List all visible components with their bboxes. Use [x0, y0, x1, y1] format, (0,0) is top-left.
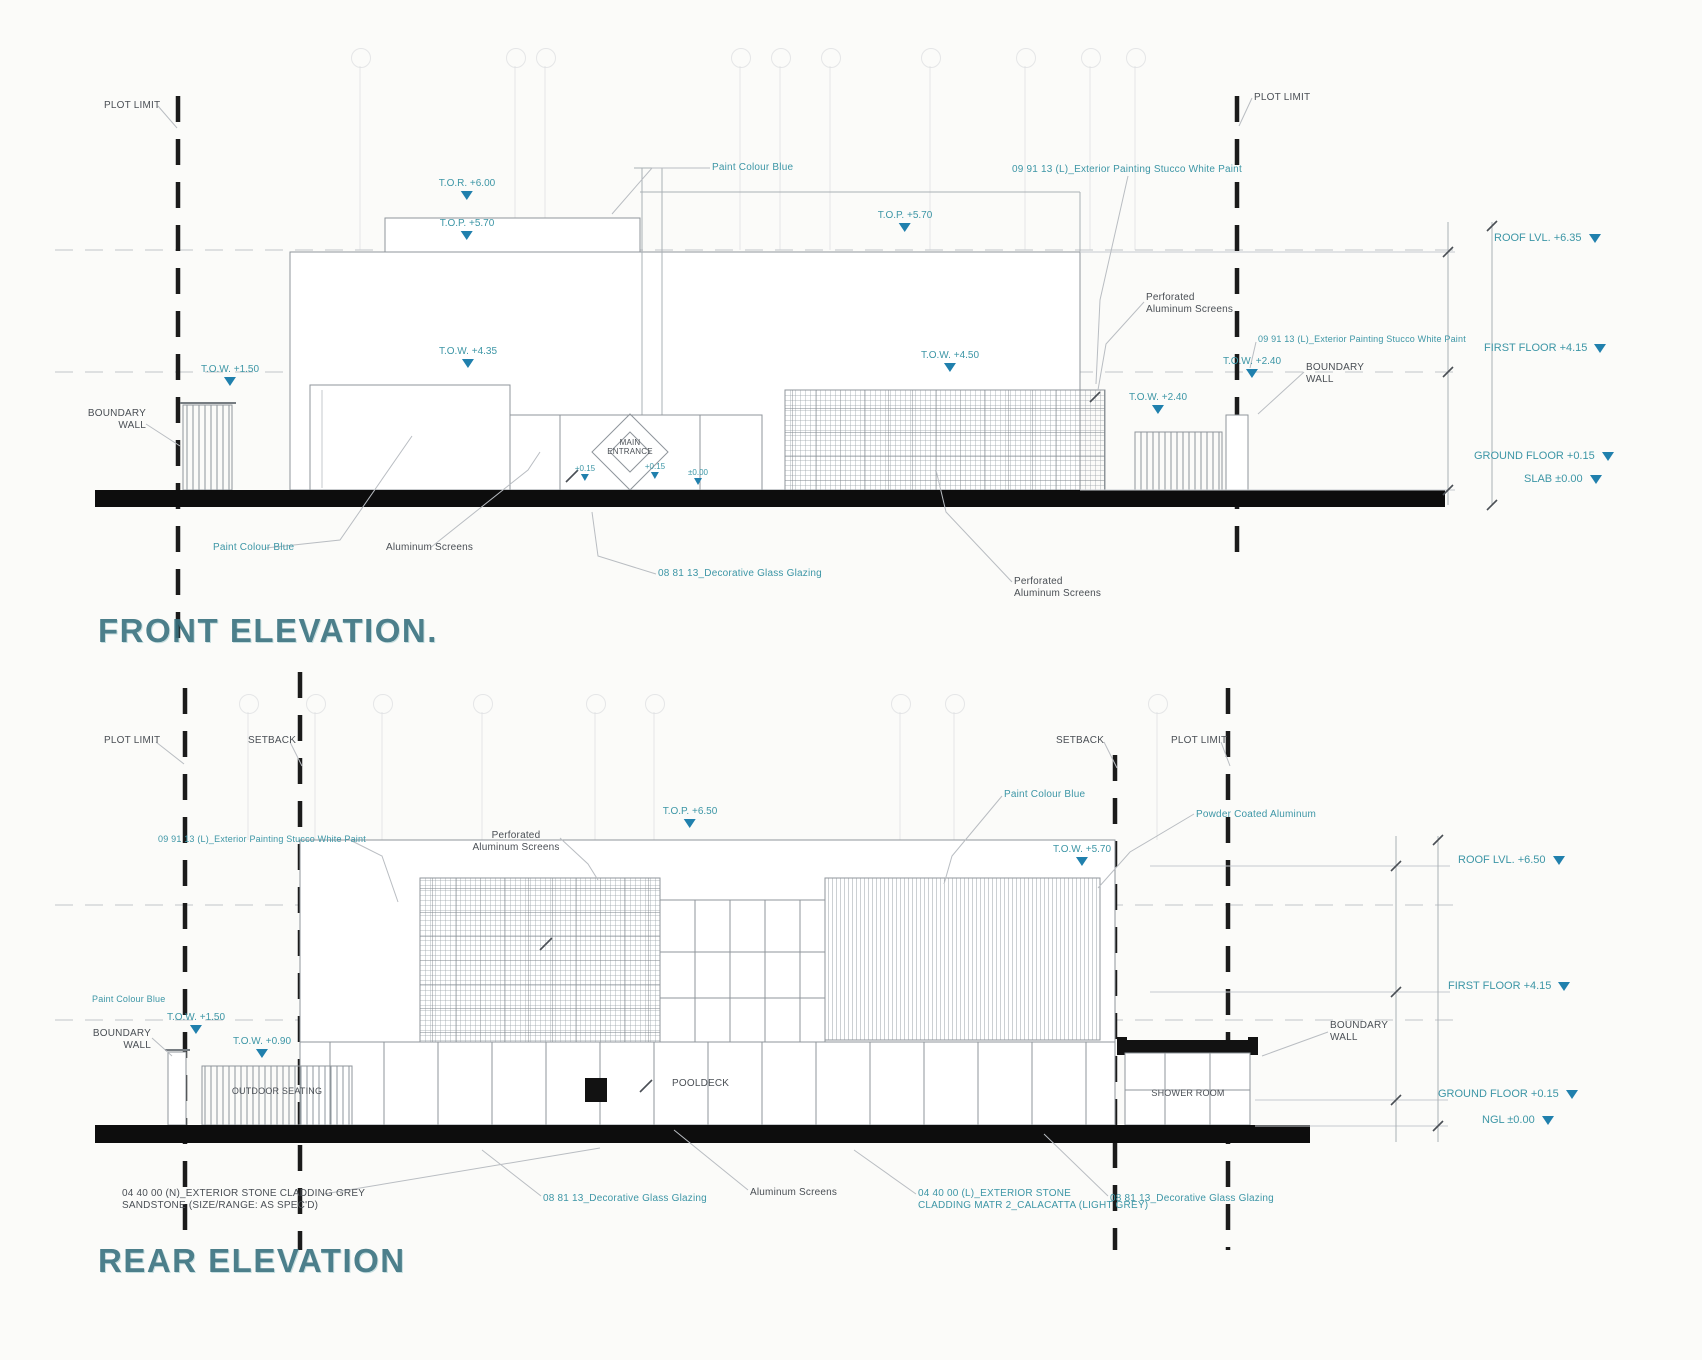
level-marker-tow-wall: T.O.W. +1.50: [201, 364, 259, 386]
boundary-wall-label-rear-left: BOUNDARY WALL: [75, 1028, 151, 1052]
grid-bubble: [771, 48, 791, 68]
grid-bubble: [921, 48, 941, 68]
grid-bubble: [1081, 48, 1101, 68]
grid-bubble: [586, 694, 606, 714]
level-triangle-icon: [462, 359, 474, 368]
boundary-wall-label-front-right: BOUNDARY WALL: [1306, 362, 1364, 386]
level-triangle-icon: [1076, 857, 1088, 866]
level-marker-base-c: ±0.00: [688, 468, 708, 485]
margin-level-first-front: FIRST FLOOR +4.15: [1484, 342, 1606, 355]
level-triangle-icon: [651, 472, 659, 479]
grid-bubble: [731, 48, 751, 68]
margin-level-ngl-rear: NGL ±0.00: [1482, 1114, 1554, 1127]
level-triangle-icon: [461, 231, 473, 240]
grid-bubble: [536, 48, 556, 68]
margin-level-slab-front: SLAB ±0.00: [1524, 473, 1602, 486]
grid-bubble: [239, 694, 259, 714]
boundary-wall-label-front-left: BOUNDARY WALL: [70, 408, 146, 432]
note-perforated-screens-front-bottom: Perforated Aluminum Screens: [1014, 576, 1101, 600]
level-triangle-icon: [1602, 452, 1614, 461]
shower-room-label: SHOWER ROOM: [1151, 1088, 1224, 1099]
setback-label-rear-right: SETBACK: [1056, 735, 1104, 747]
grid-bubble: [821, 48, 841, 68]
margin-level-roof-rear: ROOF LVL. +6.50: [1458, 854, 1565, 867]
level-marker-tow-fence: T.O.W. +2.40: [1129, 392, 1187, 414]
level-triangle-icon: [190, 1025, 202, 1034]
note-stucco-white-top: 09 91 13 (L)_Exterior Painting Stucco Wh…: [1012, 164, 1242, 176]
outdoor-seating-label: OUTDOOR SEATING: [232, 1086, 322, 1097]
level-triangle-icon: [1558, 982, 1570, 991]
level-triangle-icon: [684, 819, 696, 828]
note-paint-blue-top: Paint Colour Blue: [712, 162, 793, 174]
plot-limit-label-rear-left: PLOT LIMIT: [104, 735, 160, 747]
setback-label-rear-left: SETBACK: [248, 735, 296, 747]
note-paint-blue-rear-top: Paint Colour Blue: [1004, 789, 1085, 801]
level-triangle-icon: [1566, 1090, 1578, 1099]
note-stucco-white-right: 09 91 13 (L)_Exterior Painting Stucco Wh…: [1258, 334, 1466, 345]
level-triangle-icon: [461, 191, 473, 200]
front-elevation-title: FRONT ELEVATION.: [98, 612, 438, 650]
margin-level-roof-front: ROOF LVL. +6.35: [1494, 232, 1601, 245]
grid-bubble: [1126, 48, 1146, 68]
grid-bubble: [473, 694, 493, 714]
plot-limit-label-front-left: PLOT LIMIT: [104, 100, 160, 112]
note-aluminum-screens-rear: Aluminum Screens: [750, 1187, 837, 1199]
note-paint-blue-bottom: Paint Colour Blue: [213, 542, 294, 554]
level-triangle-icon: [899, 223, 911, 232]
level-marker-tow-bwall: T.O.W. +2.40: [1223, 356, 1281, 378]
level-triangle-icon: [1589, 234, 1601, 243]
level-marker-top-parapet-rear: T.O.P. +6.50: [663, 806, 718, 828]
rear-elevation-linework: [55, 672, 1460, 1250]
elevation-drawing-sheet: PLOT LIMIT PLOT LIMIT BOUNDARY WALL Pain…: [0, 0, 1702, 1360]
level-marker-tow-wall-rear: T.O.W. +1.50: [167, 1012, 225, 1034]
boundary-wall-label-rear-right: BOUNDARY WALL: [1330, 1020, 1388, 1044]
level-marker-tow-inner: T.O.W. +4.35: [439, 346, 497, 368]
pooldeck-label: POOLDECK: [672, 1078, 729, 1090]
grid-bubble: [945, 694, 965, 714]
level-triangle-icon: [256, 1049, 268, 1058]
level-marker-tow-screen: T.O.W. +4.50: [921, 350, 979, 372]
grid-bubble: [506, 48, 526, 68]
plot-limit-label-rear-right: PLOT LIMIT: [1171, 735, 1227, 747]
margin-level-ground-front: GROUND FLOOR +0.15: [1474, 450, 1614, 463]
note-stone-grey-sandstone: 04 40 00 (N)_EXTERIOR STONE CLADDING GRE…: [122, 1188, 365, 1212]
grid-bubble: [306, 694, 326, 714]
level-triangle-icon: [1152, 405, 1164, 414]
note-powder-coated-aluminum: Powder Coated Aluminum: [1196, 809, 1316, 821]
note-paint-blue-rear-left: Paint Colour Blue: [92, 994, 165, 1005]
level-triangle-icon: [1594, 344, 1606, 353]
level-triangle-icon: [694, 478, 702, 485]
note-perforated-screens-front-right: Perforated Aluminum Screens: [1146, 292, 1233, 316]
grid-bubble: [1148, 694, 1168, 714]
note-perforated-screens-rear: Perforated Aluminum Screens: [472, 830, 559, 854]
note-decorative-glass-rear-right: 08 81 13_Decorative Glass Glazing: [1110, 1193, 1274, 1205]
level-marker-top-mid: T.O.P. +5.70: [440, 218, 495, 240]
plot-limit-label-front-right: PLOT LIMIT: [1254, 92, 1310, 104]
note-aluminum-screens-front: Aluminum Screens: [386, 542, 473, 554]
grid-bubble: [891, 694, 911, 714]
grid-bubble: [1016, 48, 1036, 68]
margin-level-first-rear: FIRST FLOOR +4.15: [1448, 980, 1570, 993]
margin-level-ground-rear: GROUND FLOOR +0.15: [1438, 1088, 1578, 1101]
level-triangle-icon: [1590, 475, 1602, 484]
level-triangle-icon: [1542, 1116, 1554, 1125]
drawing-linework: [0, 0, 1702, 1360]
level-marker-base-a: +0.15: [575, 464, 595, 481]
level-triangle-icon: [1246, 369, 1258, 378]
main-entrance-label: MAIN ENTRANCE: [607, 438, 653, 456]
note-decorative-glass-front: 08 81 13_Decorative Glass Glazing: [658, 568, 822, 580]
level-marker-top-right: T.O.P. +5.70: [878, 210, 933, 232]
level-triangle-icon: [224, 377, 236, 386]
note-stucco-white-rear: 09 91 13 (L)_Exterior Painting Stucco Wh…: [158, 834, 366, 845]
note-decorative-glass-rear-left: 08 81 13_Decorative Glass Glazing: [543, 1193, 707, 1205]
level-triangle-icon: [581, 474, 589, 481]
rear-elevation-title: REAR ELEVATION: [98, 1242, 406, 1280]
grid-bubble: [351, 48, 371, 68]
level-marker-tor: T.O.R. +6.00: [439, 178, 495, 200]
grid-bubble: [645, 694, 665, 714]
grid-bubble: [373, 694, 393, 714]
level-triangle-icon: [944, 363, 956, 372]
level-marker-tow-louver-rear: T.O.W. +5.70: [1053, 844, 1111, 866]
level-triangle-icon: [1553, 856, 1565, 865]
level-marker-tow-fence-rear: T.O.W. +0.90: [233, 1036, 291, 1058]
level-marker-base-b: +0.15: [645, 462, 665, 479]
